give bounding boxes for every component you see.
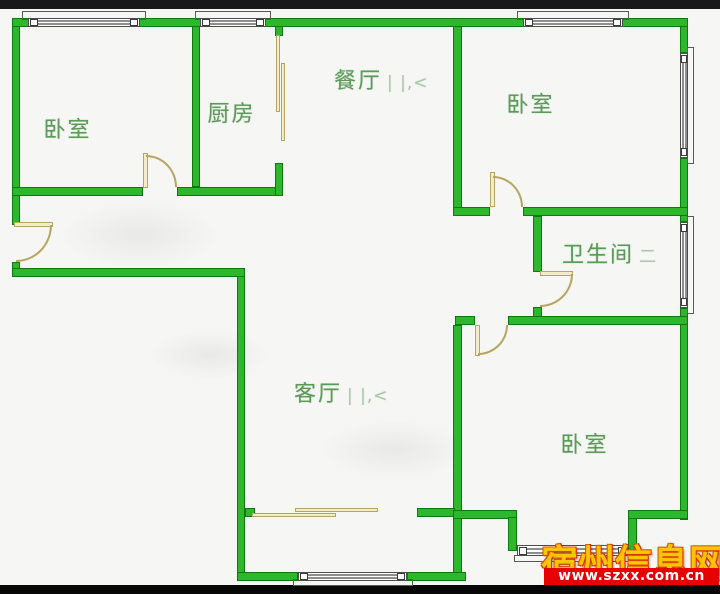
wall-bedroom2-bottom-a <box>453 207 490 216</box>
wall-bedroom2-bottom-b <box>523 207 688 216</box>
wall-right-exterior-c <box>680 308 688 520</box>
window-bedroom1-top <box>28 18 140 27</box>
door-bedroom2-swing-arc <box>493 176 523 207</box>
room-label-bathroom: 卫生间二 <box>562 237 657 269</box>
window-kitchen-top <box>200 18 266 27</box>
wall-kitchen-bottom <box>177 187 283 196</box>
wall-bathroom-left-upper <box>533 216 542 272</box>
wall-bedroom1-kitchen <box>192 26 200 187</box>
window-bedroom2-top <box>523 18 623 27</box>
wall-balcony-bottom-b <box>407 572 466 581</box>
floorplan-canvas: 卧室 厨房 餐厅| |,< 卧室 卫生间二 客厅| |,< 卧室 宿州信息网 w… <box>0 0 720 594</box>
wall-bedroom1-bottom <box>12 187 143 196</box>
wall-balcony-bottom-a <box>237 572 298 581</box>
top-letterbox-bar <box>0 0 720 9</box>
wall-bedroom3-top-a <box>455 316 475 325</box>
wall-livingroom-bottom-right <box>417 508 455 517</box>
wall-bedroom3-top-b <box>508 316 688 325</box>
room-label-dining: 餐厅| |,< <box>334 63 429 95</box>
wall-kitchen-right-stub-bottom <box>275 163 283 196</box>
window-bedroom2-right <box>680 53 688 158</box>
window-bathroom-right <box>680 222 688 308</box>
sliding-door-balcony-panel-a <box>295 508 378 512</box>
room-label-kitchen: 厨房 <box>207 96 260 128</box>
watermark-url-banner: www.szxx.com.cn <box>544 568 719 585</box>
wall-bedroom2-left <box>453 26 462 216</box>
room-label-living: 客厅| |,< <box>294 376 389 408</box>
room-label-bedroom-bottom-right: 卧室 <box>560 427 613 459</box>
door-entry-swing-arc <box>16 225 52 262</box>
room-label-bedroom-top-right: 卧室 <box>506 87 559 119</box>
wall-bedroom3-left <box>453 325 462 580</box>
door-bedroom3-swing-arc <box>478 325 508 355</box>
room-label-bedroom-top-left: 卧室 <box>43 112 96 144</box>
background-smudge <box>320 420 470 480</box>
window-frame <box>687 216 694 314</box>
sliding-door-balcony-panel-b <box>252 513 336 517</box>
window-balcony-bottom <box>298 572 407 581</box>
door-bathroom-swing-arc <box>540 274 573 307</box>
sliding-door-kitchen-panel-a <box>276 35 280 112</box>
wall-livingroom-left <box>237 276 245 580</box>
window-frame <box>687 47 694 164</box>
wall-bedroom3-bottom-b <box>628 510 688 519</box>
wall-bedroom3-step-left <box>508 517 517 551</box>
background-smudge <box>60 200 220 270</box>
wall-hallway-bottom <box>12 268 245 277</box>
sliding-door-kitchen-panel-b <box>281 63 285 141</box>
background-smudge <box>150 330 270 380</box>
door-bedroom1-swing-arc <box>146 155 177 187</box>
